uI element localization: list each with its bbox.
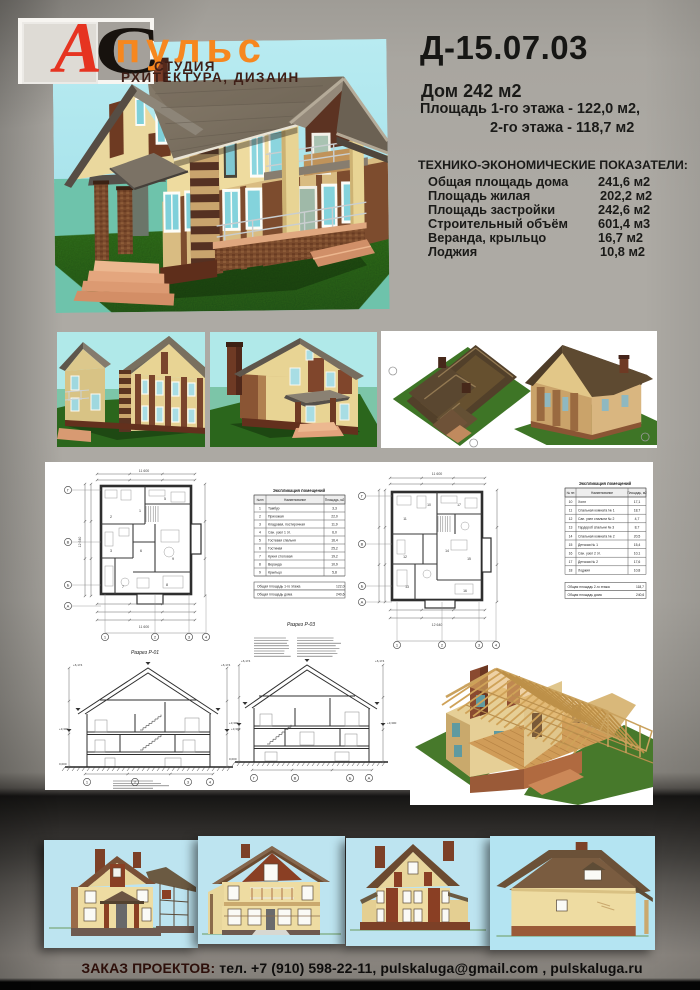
svg-text:Кладовая, постирочная: Кладовая, постирочная bbox=[268, 523, 305, 527]
svg-text:8: 8 bbox=[259, 563, 261, 567]
svg-text:11,9: 11,9 bbox=[331, 523, 337, 527]
svg-text:16,4: 16,4 bbox=[331, 539, 338, 543]
svg-text:Б: Б bbox=[67, 582, 70, 587]
svg-text:10: 10 bbox=[569, 500, 573, 504]
svg-text:2: 2 bbox=[259, 515, 261, 519]
svg-text:№ пп: № пп bbox=[567, 491, 575, 495]
svg-text:Лоджия: Лоджия bbox=[578, 569, 590, 573]
svg-text:Площадь, м2: Площадь, м2 bbox=[627, 491, 647, 495]
svg-text:19,2: 19,2 bbox=[331, 555, 338, 559]
svg-text:22,0: 22,0 bbox=[331, 515, 338, 519]
svg-text:+3,300: +3,300 bbox=[59, 727, 69, 731]
svg-text:Гардероб спальни № 3: Гардероб спальни № 3 bbox=[578, 526, 614, 530]
svg-text:0,000: 0,000 bbox=[59, 762, 67, 766]
svg-text:Сан. узел 2 эт.: Сан. узел 2 эт. bbox=[578, 552, 601, 556]
svg-text:11: 11 bbox=[403, 517, 407, 521]
svg-text:+6,174: +6,174 bbox=[241, 659, 251, 663]
svg-text:10,8: 10,8 bbox=[634, 569, 641, 573]
svg-text:11 600: 11 600 bbox=[432, 472, 442, 476]
svg-text:16: 16 bbox=[569, 552, 573, 556]
svg-text:17,1: 17,1 bbox=[634, 500, 641, 504]
svg-text:5: 5 bbox=[259, 539, 261, 543]
svg-text:240,6: 240,6 bbox=[636, 593, 644, 597]
svg-text:8,7: 8,7 bbox=[635, 526, 640, 530]
svg-text:Общая площадь 2-го этажа: Общая площадь 2-го этажа bbox=[568, 585, 610, 589]
svg-text:9: 9 bbox=[259, 571, 261, 575]
svg-text:4,7: 4,7 bbox=[635, 517, 640, 521]
svg-text:5,8: 5,8 bbox=[332, 571, 337, 575]
svg-text:+3,300: +3,300 bbox=[387, 721, 397, 725]
svg-text:Спальная комната № 1: Спальная комната № 1 bbox=[578, 509, 615, 513]
svg-text:Сан. узел 1 эт.: Сан. узел 1 эт. bbox=[268, 531, 291, 535]
svg-text:Спальная комната № 2: Спальная комната № 2 bbox=[578, 534, 615, 538]
svg-text:А: А bbox=[67, 603, 70, 608]
svg-text:Прихожая: Прихожая bbox=[268, 515, 284, 519]
svg-text:11 600: 11 600 bbox=[139, 469, 149, 473]
svg-text:25,2: 25,2 bbox=[331, 547, 338, 551]
svg-text:1: 1 bbox=[139, 509, 141, 513]
svg-text:13: 13 bbox=[405, 585, 409, 589]
svg-text:17: 17 bbox=[569, 560, 573, 564]
svg-text:В: В bbox=[361, 541, 364, 546]
svg-text:№пп: №пп bbox=[257, 498, 264, 502]
svg-text:Холл: Холл bbox=[578, 500, 586, 504]
svg-text:17: 17 bbox=[457, 503, 461, 507]
svg-text:Общая площадь дома: Общая площадь дома bbox=[568, 593, 602, 597]
svg-text:7: 7 bbox=[122, 585, 124, 589]
svg-text:Кухня столовая: Кухня столовая bbox=[268, 555, 293, 559]
svg-text:11 600: 11 600 bbox=[139, 625, 149, 629]
svg-text:+6,174: +6,174 bbox=[221, 663, 231, 667]
svg-text:7: 7 bbox=[259, 555, 261, 559]
svg-text:3,3: 3,3 bbox=[332, 507, 337, 511]
svg-text:Площадь, м2: Площадь, м2 bbox=[325, 498, 345, 502]
svg-text:Разрез Р-01: Разрез Р-01 bbox=[131, 650, 159, 656]
svg-text:6: 6 bbox=[140, 549, 142, 553]
svg-text:6: 6 bbox=[259, 547, 261, 551]
svg-text:Общая площадь дома: Общая площадь дома bbox=[257, 593, 292, 597]
svg-text:2: 2 bbox=[110, 515, 112, 519]
svg-text:1: 1 bbox=[259, 507, 261, 511]
svg-text:4: 4 bbox=[259, 531, 261, 535]
svg-text:15,4: 15,4 bbox=[634, 543, 641, 547]
svg-text:Гостиная: Гостиная bbox=[268, 547, 282, 551]
svg-text:0,000: 0,000 bbox=[229, 757, 237, 761]
svg-text:9: 9 bbox=[172, 557, 174, 561]
svg-text:Веранда: Веранда bbox=[268, 563, 282, 567]
svg-text:15: 15 bbox=[569, 543, 573, 547]
svg-text:А: А bbox=[361, 599, 364, 604]
svg-text:Сан. узел спальни № 2: Сан. узел спальни № 2 bbox=[578, 517, 614, 521]
svg-text:+6,174: +6,174 bbox=[73, 663, 83, 667]
svg-text:Разрез Р-03: Разрез Р-03 bbox=[287, 622, 315, 628]
svg-text:3: 3 bbox=[110, 549, 112, 553]
svg-text:В: В bbox=[67, 539, 70, 544]
svg-text:6,0: 6,0 bbox=[332, 531, 337, 535]
svg-text:122,0: 122,0 bbox=[336, 585, 345, 589]
svg-text:Детская № 2: Детская № 2 bbox=[578, 560, 598, 564]
svg-text:8: 8 bbox=[166, 583, 168, 587]
svg-text:Крыльцо: Крыльцо bbox=[268, 571, 282, 575]
svg-text:+6,174: +6,174 bbox=[375, 659, 385, 663]
svg-text:13: 13 bbox=[569, 526, 573, 530]
svg-text:12: 12 bbox=[403, 555, 407, 559]
svg-text:10,1: 10,1 bbox=[634, 552, 641, 556]
svg-text:Детская № 1: Детская № 1 bbox=[578, 543, 598, 547]
svg-text:Экспликация помещений: Экспликация помещений bbox=[273, 488, 326, 493]
svg-text:12: 12 bbox=[569, 517, 573, 521]
svg-text:Наименование: Наименование bbox=[284, 498, 306, 502]
svg-text:14: 14 bbox=[445, 549, 449, 553]
svg-text:5: 5 bbox=[164, 497, 166, 501]
svg-text:18: 18 bbox=[569, 569, 573, 573]
svg-text:12 640: 12 640 bbox=[432, 623, 443, 627]
svg-text:А: А bbox=[368, 775, 371, 780]
svg-text:Гостевая спальня: Гостевая спальня bbox=[268, 539, 296, 543]
svg-text:Б: Б bbox=[361, 583, 364, 588]
svg-text:118,7: 118,7 bbox=[636, 585, 644, 589]
svg-text:3: 3 bbox=[259, 523, 261, 527]
svg-text:Тамбур: Тамбур bbox=[268, 507, 280, 511]
svg-text:Наименование: Наименование bbox=[591, 491, 613, 495]
svg-text:11: 11 bbox=[569, 509, 573, 513]
svg-text:+3,300: +3,300 bbox=[229, 721, 239, 725]
svg-text:16: 16 bbox=[463, 589, 467, 593]
svg-text:240,6: 240,6 bbox=[336, 593, 345, 597]
svg-text:10: 10 bbox=[427, 503, 431, 507]
svg-text:17,6: 17,6 bbox=[634, 560, 641, 564]
svg-text:Экспликация помещений: Экспликация помещений bbox=[579, 481, 632, 486]
svg-text:10,9: 10,9 bbox=[331, 563, 338, 567]
svg-text:Общая площадь 1-го этажа: Общая площадь 1-го этажа bbox=[257, 585, 300, 589]
svg-text:15: 15 bbox=[467, 557, 471, 561]
svg-text:В: В bbox=[294, 775, 297, 780]
svg-text:18,7: 18,7 bbox=[634, 509, 641, 513]
svg-text:Б: Б bbox=[349, 775, 352, 780]
svg-text:20,5: 20,5 bbox=[634, 534, 641, 538]
svg-text:14: 14 bbox=[569, 534, 573, 538]
